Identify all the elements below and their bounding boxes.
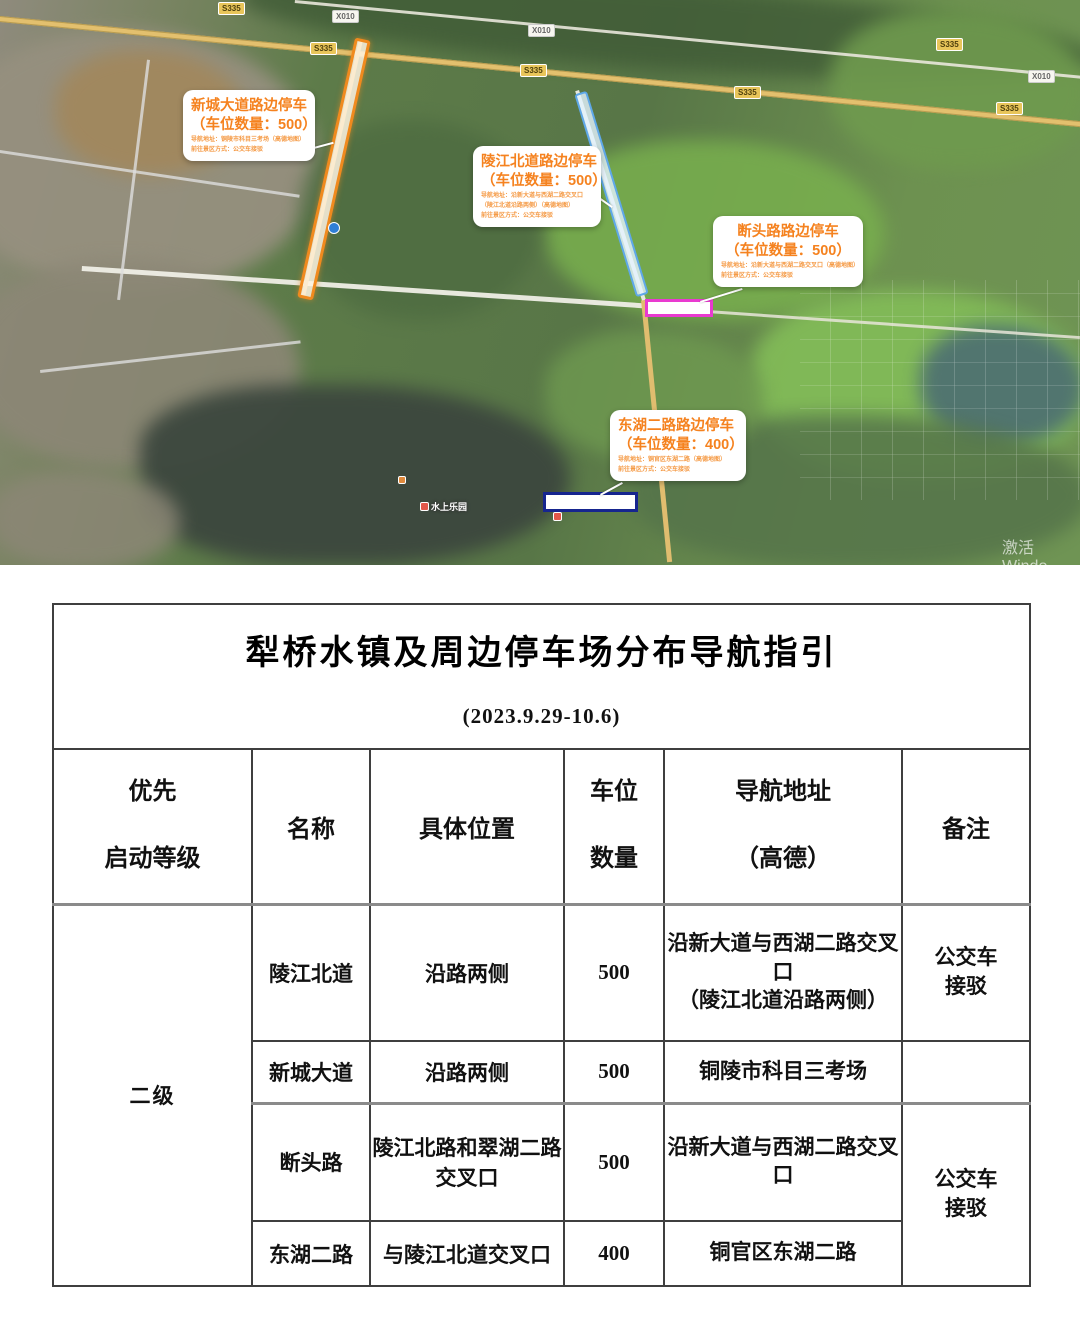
row-nav-address: 铜陵市科目三考场 — [664, 1041, 902, 1103]
callout-nav-address: 导航地址：沿新大道与西湖二路交叉口 — [481, 192, 593, 201]
callout-nav-address: 导航地址：铜官区东湖二路（高德地图） — [618, 456, 738, 465]
road-badge-s335: S335 — [310, 42, 337, 55]
callout-nav-address2: （陵江北道沿路两侧）（高德地图） — [481, 202, 593, 211]
watermark-line1: 激活 Windo — [1002, 534, 1080, 565]
callout-donghu-parking: 东湖二路路边停车 （车位数量：400） 导航地址：铜官区东湖二路（高德地图） 前… — [610, 410, 746, 481]
header-location: 具体位置 — [370, 749, 564, 904]
poi-marker-icon — [553, 512, 562, 521]
row-location: 沿路两侧 — [370, 904, 564, 1041]
header-nav-address: 导航地址 （高德） — [664, 749, 902, 904]
parking-rect-donghu-highlight — [543, 492, 638, 512]
school-poi-icon — [328, 222, 340, 234]
callout-count: （车位数量：500） — [721, 242, 855, 261]
table-row: 二级 陵江北道 沿路两侧 500 沿新大道与西湖二路交叉口 （陵江北道沿路两侧）… — [53, 904, 1030, 1041]
callout-access-mode: 前往景区方式：公交车接驳 — [481, 212, 593, 221]
poi-water-park-label: 水上乐园 — [431, 500, 467, 513]
row-name: 断头路 — [252, 1103, 370, 1221]
map-farmland — [830, 10, 1080, 170]
row-location: 沿路两侧 — [370, 1041, 564, 1103]
callout-title: 陵江北道路边停车 — [481, 153, 593, 172]
map-field-grid — [800, 280, 1080, 500]
road-badge-s335: S335 — [936, 38, 963, 51]
header-remark: 备注 — [902, 749, 1030, 904]
priority-level-cell: 二级 — [53, 904, 252, 1286]
parking-guide-table: 犁桥水镇及周边停车场分布导航指引 (2023.9.29-10.6) 优先 启动等… — [52, 603, 1029, 1287]
header-name: 名称 — [252, 749, 370, 904]
header-priority-level: 优先 启动等级 — [53, 749, 252, 904]
callout-title: 断头路路边停车 — [721, 223, 855, 242]
date-range: (2023.9.29-10.6) — [54, 704, 1029, 729]
callout-duantou-parking: 断头路路边停车 （车位数量：500） 导航地址：沿新大道与西湖二路交叉口（高德地… — [713, 216, 863, 287]
poi-water-park: 水上乐园 — [420, 500, 467, 513]
poi-marker-icon — [398, 476, 406, 484]
row-location: 与陵江北道交叉口 — [370, 1221, 564, 1286]
callout-count: （车位数量：500） — [481, 172, 593, 191]
row-remark — [902, 1041, 1030, 1103]
row-nav-address: 沿新大道与西湖二路交叉口 — [664, 1103, 902, 1221]
row-remark-merged: 公交车 接驳 — [902, 1103, 1030, 1286]
row-count: 500 — [564, 904, 664, 1041]
callout-nav-address: 导航地址：铜陵市科目三考场（高德地图） — [191, 136, 307, 145]
row-count: 400 — [564, 1221, 664, 1286]
row-count: 500 — [564, 1103, 664, 1221]
road-badge-x010: X010 — [528, 24, 555, 37]
callout-access-mode: 前往景区方式：公交车接驳 — [618, 466, 738, 475]
callout-title: 新城大道路边停车 — [191, 97, 307, 116]
row-name: 新城大道 — [252, 1041, 370, 1103]
callout-count: （车位数量：400） — [618, 436, 738, 455]
callout-access-mode: 前往景区方式：公交车接驳 — [721, 272, 855, 281]
callout-title: 东湖二路路边停车 — [618, 417, 738, 436]
windows-activation-watermark: 激活 Windo 转到“设置”以激活 Win — [1002, 534, 1080, 565]
row-count: 500 — [564, 1041, 664, 1103]
row-name: 东湖二路 — [252, 1221, 370, 1286]
callout-nav-address: 导航地址：沿新大道与西湖二路交叉口（高德地图） — [721, 262, 855, 271]
callout-access-mode: 前往景区方式：公交车接驳 — [191, 146, 307, 155]
row-location: 陵江北路和翠湖二路交叉口 — [370, 1103, 564, 1221]
row-nav-address: 沿新大道与西湖二路交叉口 （陵江北道沿路两侧） — [664, 904, 902, 1041]
row-remark: 公交车 接驳 — [902, 904, 1030, 1041]
road-badge-s335: S335 — [520, 64, 547, 77]
road-badge-s335: S335 — [734, 86, 761, 99]
road-badge-x010: X010 — [1028, 70, 1055, 83]
road-badge-x010: X010 — [332, 10, 359, 23]
header-space-count: 车位 数量 — [564, 749, 664, 904]
poi-marker-icon — [420, 502, 429, 511]
map-lake — [140, 385, 570, 565]
table-title-cell: 犁桥水镇及周边停车场分布导航指引 (2023.9.29-10.6) — [53, 604, 1030, 749]
road-badge-s335: S335 — [218, 2, 245, 15]
callout-xincheng-parking: 新城大道路边停车 （车位数量：500） 导航地址：铜陵市科目三考场（高德地图） … — [183, 90, 315, 161]
page-title: 犁桥水镇及周边停车场分布导航指引 — [54, 625, 1029, 674]
road-badge-s335: S335 — [996, 102, 1023, 115]
row-name: 陵江北道 — [252, 904, 370, 1041]
satellite-map: 新城大道路边停车 （车位数量：500） 导航地址：铜陵市科目三考场（高德地图） … — [0, 0, 1080, 565]
callout-count: （车位数量：500） — [191, 116, 307, 135]
row-nav-address: 铜官区东湖二路 — [664, 1221, 902, 1286]
callout-lingjiang-parking: 陵江北道路边停车 （车位数量：500） 导航地址：沿新大道与西湖二路交叉口 （陵… — [473, 146, 601, 227]
